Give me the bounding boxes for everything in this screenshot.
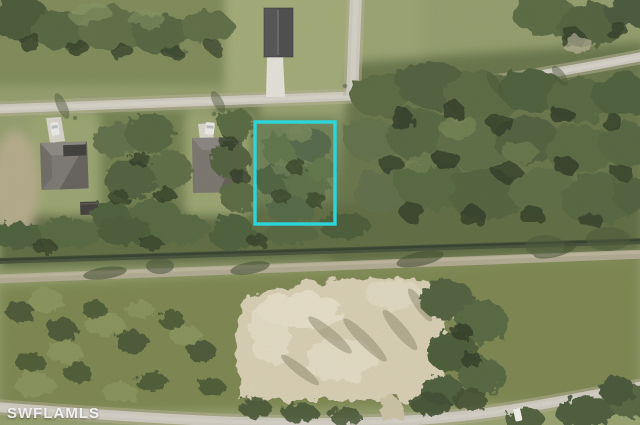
aerial-photo-canvas (0, 0, 640, 425)
mls-watermark: SWFLAMLS (7, 405, 100, 422)
photo-grain-light (0, 0, 640, 425)
aerial-photo: SWFLAMLS (0, 0, 640, 425)
